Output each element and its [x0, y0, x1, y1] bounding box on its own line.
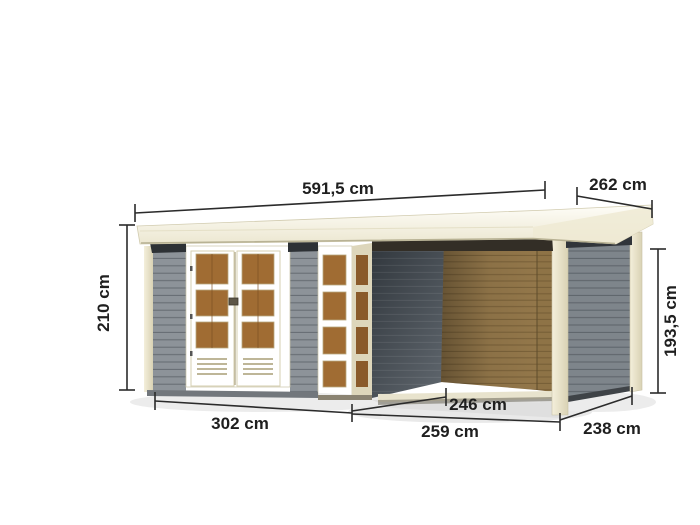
front-wall-left-siding	[153, 245, 186, 392]
corner-window-element	[318, 243, 372, 400]
corner-post-front	[552, 239, 568, 415]
dimension-label-annex-side-depth: 238 cm	[583, 419, 641, 438]
main-shed-front	[144, 243, 372, 400]
dimension-label-shed-front-width: 302 cm	[211, 414, 269, 433]
double-door	[186, 246, 290, 387]
corner-trim-left	[144, 246, 153, 392]
dimension-label-annex-inner-depth: 246 cm	[449, 395, 507, 414]
corner-element-base	[318, 395, 372, 400]
dimension-label-annex-front-width: 259 cm	[421, 422, 479, 441]
dimension-label-height-left: 210 cm	[94, 274, 113, 332]
corner-post-rear	[630, 232, 642, 392]
corner-element-front-panes	[323, 255, 346, 387]
door-lock	[229, 298, 238, 305]
dimension-height-right: 193,5 cm	[650, 249, 680, 393]
door-left-window-panes	[196, 254, 228, 348]
door-right-window-panes	[242, 254, 274, 348]
annex-back-wall-right-segment	[537, 239, 553, 392]
dimension-label-height-right: 193,5 cm	[661, 285, 680, 357]
front-wall-middle-siding	[290, 245, 318, 395]
annex-side-wall	[552, 232, 642, 415]
shed-side-wall-shadow	[372, 234, 446, 398]
product-diagram: 591,5 cm 262 cm 210 cm 193,5 cm 302 cm 2…	[0, 0, 700, 525]
dimension-height-left: 210 cm	[94, 225, 135, 390]
shed-illustration: 591,5 cm 262 cm 210 cm 193,5 cm 302 cm 2…	[0, 0, 700, 525]
dimension-label-roof-depth: 262 cm	[589, 175, 647, 194]
roof	[137, 205, 653, 244]
dimension-label-roof-width: 591,5 cm	[302, 179, 374, 198]
